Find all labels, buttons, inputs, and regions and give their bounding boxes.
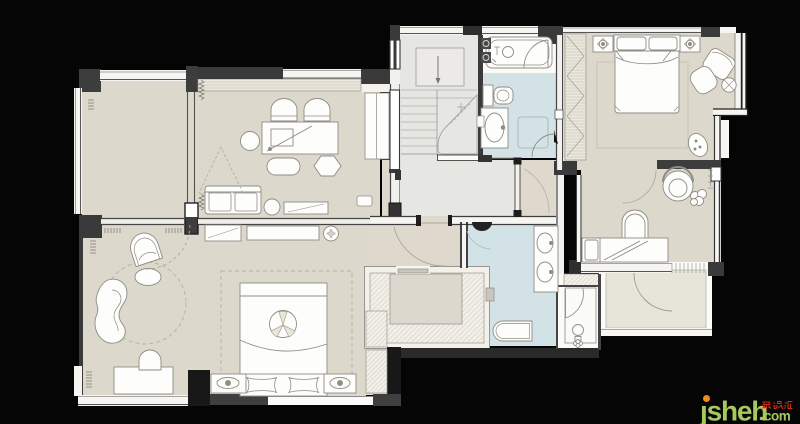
svg-text:com: com bbox=[764, 409, 791, 424]
